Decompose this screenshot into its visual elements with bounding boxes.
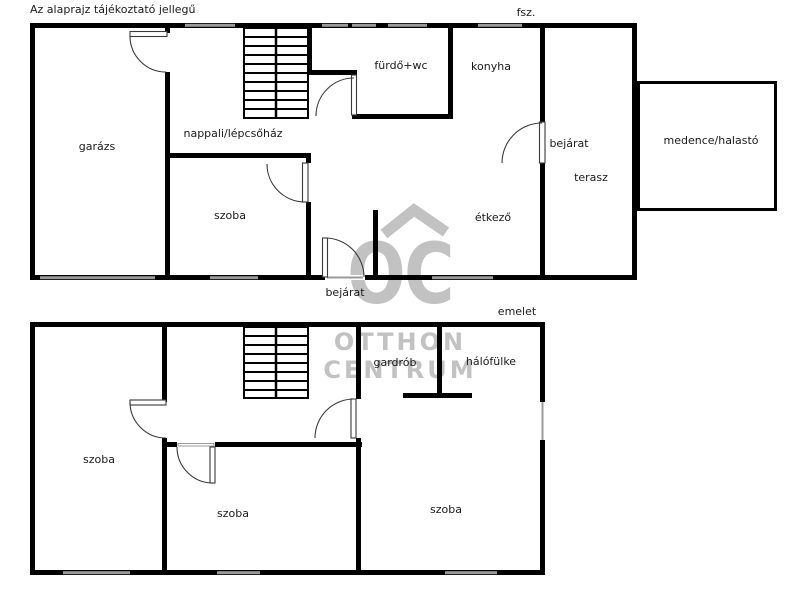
- floor-label-emelet: emelet: [498, 305, 536, 318]
- room-label-room-left: szoba: [83, 453, 115, 466]
- room-label-room-right: szoba: [430, 503, 462, 516]
- room-label-pool-fishpond: medence/halastó: [663, 134, 758, 147]
- room-label-wardrobe: gardrób: [373, 356, 416, 369]
- room-label-entrance-front: bejárat: [325, 286, 364, 299]
- room-label-kitchen: konyha: [471, 60, 511, 73]
- room-label-garage: garázs: [79, 140, 116, 153]
- room-label-sleeping-alcove: hálófülke: [466, 355, 516, 368]
- disclaimer-text: Az alaprajz tájékoztató jellegű: [30, 3, 196, 16]
- floor-label-fsz: fsz.: [517, 6, 536, 19]
- room-label-room-fsz: szoba: [214, 209, 246, 222]
- floorplan-canvas: OC OTTHON CENTRUM: [0, 0, 800, 590]
- room-label-room-middle: szoba: [217, 507, 249, 520]
- room-label-entrance-side: bejárat: [549, 137, 588, 150]
- room-label-bathroom-wc: fürdő+wc: [374, 59, 427, 72]
- room-label-living-staircase: nappali/lépcsőház: [183, 127, 282, 140]
- room-label-terrace: terasz: [574, 171, 608, 184]
- labels-layer: Az alaprajz tájékoztató jellegű fsz. gar…: [0, 0, 800, 590]
- room-label-dining: étkező: [475, 211, 511, 224]
